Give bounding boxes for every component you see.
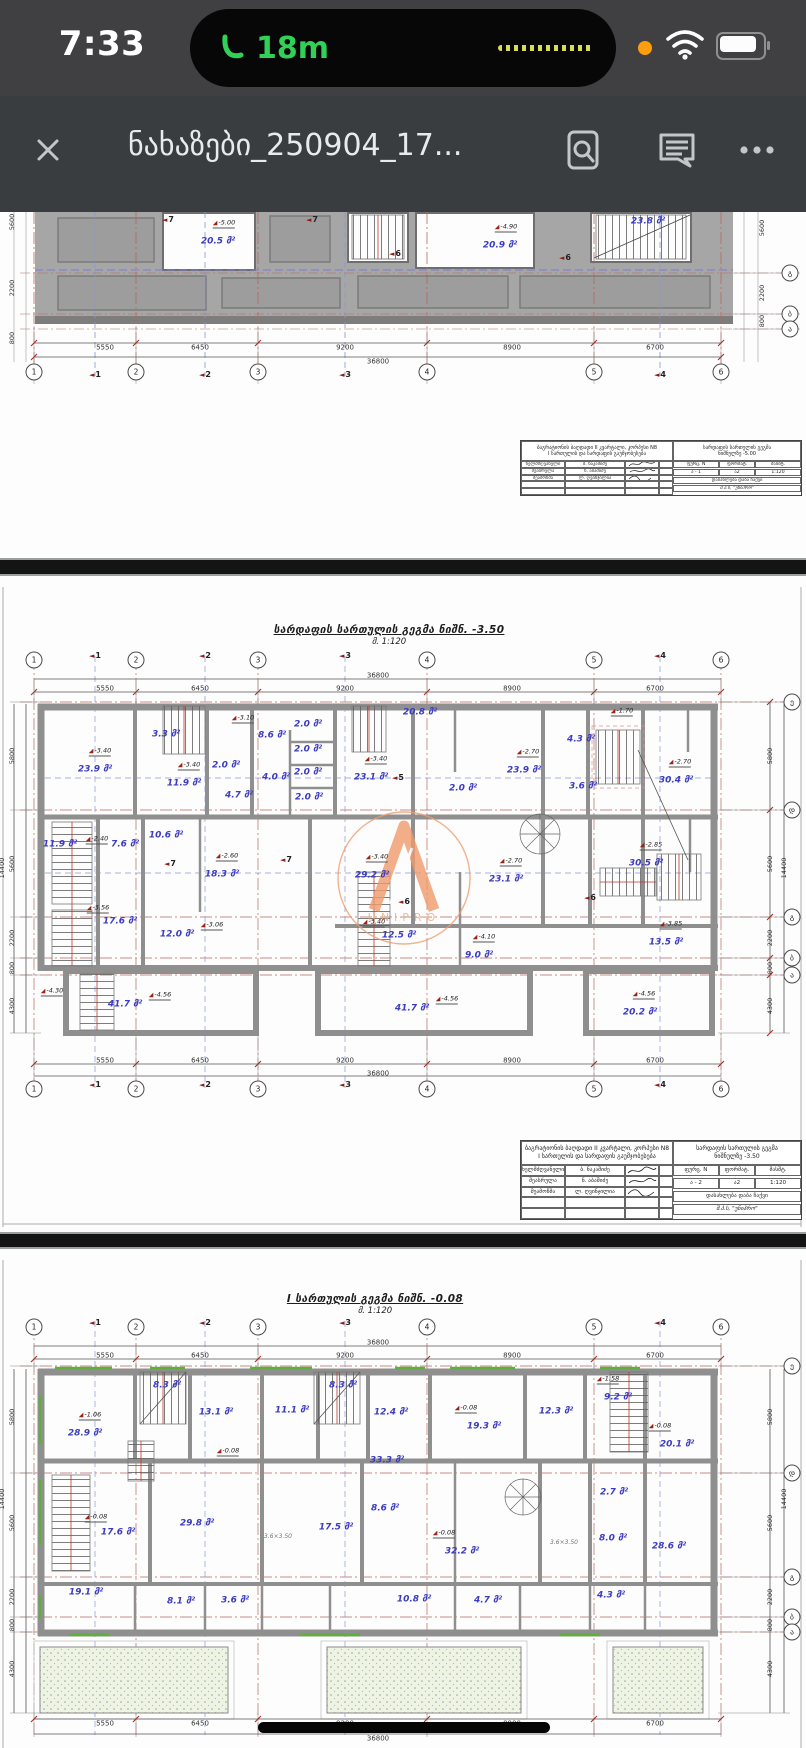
dynamic-island-call-pill[interactable]: 18m	[190, 9, 616, 87]
viewer-toolbar: ნახაზები_250904_17...	[0, 96, 806, 212]
dimension-label: 8900	[503, 686, 521, 693]
room-area-label: 19.1 მ²	[69, 1589, 103, 1598]
room-area-label: 23.9 მ²	[507, 767, 541, 776]
dimension-label: 36800	[367, 359, 389, 366]
room-area-label: 20.9 მ²	[483, 242, 517, 251]
dimension-label: 6450	[191, 1058, 209, 1065]
room-area-label: 3.3 მ²	[152, 731, 180, 740]
tb-sheet-value: ა - 2	[673, 1178, 719, 1189]
grid-bubble: 4	[419, 1319, 436, 1336]
room-area-label: 30.4 მ²	[659, 777, 693, 786]
section-flag-label: 1	[89, 1081, 101, 1089]
level-mark: -1.06	[79, 1412, 101, 1421]
dimension-label-vertical: 800	[9, 1619, 16, 1631]
grid-bubble: 6	[713, 364, 730, 381]
dimension-label: 36800	[367, 1736, 389, 1743]
battery-icon	[716, 32, 766, 60]
pdf-page-3: I სართულის გეგმა ნიშნ. -0.08 მ. 1:120	[0, 1245, 806, 1748]
room-area-label: 20.5 მ²	[201, 238, 235, 247]
dimension-label-vertical: 800	[767, 962, 774, 974]
tb-scale-value: 1:120	[755, 1178, 801, 1189]
tb-role: შეამოწმა	[521, 475, 565, 482]
room-area-label: 8.6 მ²	[258, 732, 286, 741]
dimension-label-vertical: 4300	[767, 998, 774, 1015]
dimension-label-vertical: 4300	[767, 1661, 774, 1678]
grid-bubble: ე	[784, 694, 801, 711]
dimension-label-vertical: 800	[9, 332, 16, 344]
room-area-label: 29.2 მ²	[355, 872, 389, 881]
room-area-label: 20.1 მ²	[660, 1441, 694, 1450]
drawing-heading: I სართულის გეგმა ნიშნ. -0.08 მ. 1:120	[287, 1293, 463, 1316]
grid-bubble: 1	[26, 1319, 43, 1336]
tb-company: შ.პ.ს, "უნიპრო"	[673, 1204, 801, 1215]
dimension-label-vertical: 14400	[0, 858, 5, 879]
level-mark: -4.56	[149, 992, 171, 1001]
grid-bubble: 3	[250, 652, 267, 669]
grid-bubble: 3	[250, 364, 267, 381]
tb-name: ლ. ღვინჯილია	[565, 1187, 625, 1198]
dimension-label-vertical: 5600	[9, 856, 16, 873]
room-area-label: 8.0 მ²	[599, 1535, 627, 1544]
close-button[interactable]	[22, 124, 74, 176]
tb-sheet-header: ფურც. N	[673, 461, 719, 468]
grid-bubble: 6	[713, 1319, 730, 1336]
dimension-label: 6700	[646, 1721, 664, 1728]
room-area-label: 2.0 მ²	[449, 785, 477, 794]
grid-bubble: 1	[26, 364, 43, 381]
dimension-label-vertical: 5800	[9, 1409, 16, 1426]
room-area-label: 11.1 მ²	[275, 1407, 309, 1416]
level-mark: -0.08	[433, 1530, 455, 1539]
room-area-label: 4.3 მ²	[597, 1592, 625, 1601]
dimension-label-vertical: 2200	[767, 1589, 774, 1606]
grid-bubble: 4	[419, 652, 436, 669]
room-area-label: 18.3 მ²	[205, 871, 239, 880]
level-mark: -4.56	[633, 991, 655, 1000]
level-mark: -4.56	[436, 996, 458, 1005]
recording-indicator-dot	[638, 41, 652, 55]
grid-bubble: გ	[784, 909, 801, 926]
tb-location: დასახლება დაბა ჩაქვი	[673, 1191, 801, 1202]
dimension-label-vertical: 5800	[767, 1409, 774, 1426]
grid-bubble: გ	[782, 265, 799, 282]
dimension-label-vertical: 800	[9, 962, 16, 974]
room-area-label: 7.6 მ²	[111, 841, 139, 850]
level-mark: -5.00	[213, 220, 235, 229]
room-area-label: 17.6 მ²	[103, 918, 137, 927]
tb-name: ბ. ნაკაშიძე	[565, 461, 625, 468]
pdf-page-2: სარდაფის სართულის გეგმა ნიშნ. -3.50 მ. 1…	[0, 572, 806, 1232]
room-area-label: 12.5 მ²	[382, 932, 416, 941]
room-area-label: 23.9 მ²	[78, 766, 112, 775]
dimension-label: 8900	[503, 345, 521, 352]
dimension-label: 6450	[191, 686, 209, 693]
phone-icon	[220, 33, 246, 63]
room-area-label: 10.8 მ²	[397, 1596, 431, 1605]
room-area-label: 8.1 მ²	[167, 1598, 195, 1607]
level-mark: -3.40	[363, 919, 385, 928]
dimension-label-vertical: 5600	[759, 220, 766, 237]
dimension-label-vertical: 5600	[9, 1515, 16, 1532]
tb-signature	[625, 475, 659, 482]
pdf-scroll-area[interactable]: -5.0020.5 მ²-4.9020.9 მ²23.8 მ²776655506…	[0, 212, 806, 1748]
dimension-label: 5550	[96, 1721, 114, 1728]
tb-scale-header: მასშტ.	[755, 461, 801, 468]
room-area-label: 23.1 მ²	[489, 876, 523, 885]
room-area-label: 8.6 მ²	[371, 1505, 399, 1514]
dimension-label: 6450	[191, 1353, 209, 1360]
tb-format-value: ა2	[719, 1178, 755, 1189]
title-block: ბაგრატიონის ბაღდადი II კვარტალი, კორპუსი…	[520, 1140, 802, 1220]
status-bar: 7:33 18m	[0, 0, 806, 96]
room-area-label: 3.6 მ²	[569, 783, 597, 792]
dimension-label-vertical: 4300	[9, 1661, 16, 1678]
drawing-heading: სარდაფის სართულის გეგმა ნიშნ. -3.50 მ. 1…	[274, 624, 505, 647]
section-flag-label: 3	[339, 1319, 351, 1327]
grid-bubble: 5	[586, 364, 603, 381]
dimension-label: 9200	[336, 686, 354, 693]
dimension-label: 36800	[367, 1340, 389, 1347]
room-area-label: 4.7 მ²	[225, 792, 253, 801]
level-mark: -2.40	[86, 836, 108, 845]
tb-signature	[625, 1165, 659, 1176]
tb-signature	[625, 461, 659, 468]
title-block-project: ბაგრატიონის ბაღდადი II კვარტალი, კორპუსი…	[521, 441, 673, 461]
room-area-label: 2.0 მ²	[212, 762, 240, 771]
grid-bubble: 3	[250, 1319, 267, 1336]
room-area-label: 41.7 მ²	[108, 1001, 142, 1010]
level-mark: -2.70	[500, 858, 522, 867]
grid-bubble: დ	[784, 802, 801, 819]
dimension-label: 6700	[646, 1058, 664, 1065]
dimension-label-vertical: 2200	[767, 930, 774, 947]
title-block-project: ბაგრატიონის ბაღდადი II კვარტალი, კორპუსი…	[521, 1141, 673, 1165]
tb-signature	[625, 468, 659, 475]
section-flag-label: 2	[199, 1081, 211, 1089]
section-flag-label: 2	[199, 371, 211, 379]
level-mark: -2.70	[517, 749, 539, 758]
dimension-label-vertical: 14400	[781, 858, 788, 879]
grid-bubble: 6	[713, 1081, 730, 1098]
tb-role: ხელმძღვანელი	[521, 461, 565, 468]
room-note-label: 3.6×3.50	[264, 1534, 292, 1540]
grid-bubble: 1	[26, 652, 43, 669]
level-mark: -4.10	[473, 934, 495, 943]
grid-bubble: ა	[782, 321, 799, 338]
tb-name: ბ. ნაკაშიძე	[565, 1165, 625, 1176]
dimension-label-vertical: 5600	[767, 1515, 774, 1532]
grid-bubble: ბ	[784, 950, 801, 967]
section-flag-label: 2	[199, 1319, 211, 1327]
room-area-label: 13.1 მ²	[199, 1409, 233, 1418]
room-area-label: 32.2 მ²	[445, 1548, 479, 1557]
dimension-label-vertical: 5800	[9, 748, 16, 765]
grid-bubble: დ	[784, 1465, 801, 1482]
level-mark: -3.40	[365, 756, 387, 765]
level-mark: -3.40	[89, 748, 111, 757]
grid-bubble: 5	[586, 652, 603, 669]
tb-role: შეასრულა	[521, 468, 565, 475]
dimension-label-vertical: 2200	[9, 280, 16, 297]
dimension-label: 5550	[96, 345, 114, 352]
dimension-label: 6450	[191, 345, 209, 352]
level-mark: -3.06	[201, 922, 223, 931]
home-indicator[interactable]	[258, 1722, 550, 1733]
tb-signature	[625, 1187, 659, 1198]
tb-name: ნ. აბაშიძე	[565, 1176, 625, 1187]
dimension-label: 6450	[191, 1721, 209, 1728]
grid-bubble: 2	[128, 1319, 145, 1336]
level-mark: -2.70	[669, 759, 691, 768]
more-options-button[interactable]	[731, 124, 783, 176]
room-area-label: 4.7 მ²	[474, 1597, 502, 1606]
grid-bubble: 6	[713, 652, 730, 669]
grid-bubble: 4	[419, 364, 436, 381]
section-flag-label: 7	[306, 216, 318, 224]
dimension-label: 8900	[503, 1058, 521, 1065]
tb-format-header: ფორმატ.	[719, 461, 755, 468]
room-area-label: 3.6 მ²	[221, 1597, 249, 1606]
room-area-label: 13.5 მ²	[649, 939, 683, 948]
tb-name: ნ. აბაშიძე	[565, 468, 625, 475]
tb-company: შ.პ.ს, "უნიპრო"	[673, 485, 801, 492]
room-area-label: 12.3 მ²	[539, 1408, 573, 1417]
room-area-label: 10.6 მ²	[149, 832, 183, 841]
section-flag-label: 1	[89, 371, 101, 379]
grid-bubble: 1	[26, 1081, 43, 1098]
section-flag-label: 1	[89, 652, 101, 660]
tb-format-header: ფორმატ.	[719, 1165, 755, 1176]
section-flag-label: 4	[654, 1081, 666, 1089]
section-flag-label: 4	[654, 1319, 666, 1327]
title-block-drawing: სარდაფის სართულის გეგმანიშნულზე -3.50	[673, 1141, 801, 1165]
dimension-label: 6700	[646, 686, 664, 693]
dimension-label: 5550	[96, 1058, 114, 1065]
room-area-label: 2.0 მ²	[294, 721, 322, 730]
dimension-label-vertical: 14400	[781, 1489, 788, 1510]
dimension-label: 5550	[96, 686, 114, 693]
room-note-label: 3.6×3.50	[550, 1540, 578, 1546]
room-area-label: 8.3 მ²	[329, 1382, 357, 1391]
tb-sheet-value: ა - 1	[673, 469, 719, 476]
section-flag-label: 4	[654, 652, 666, 660]
dimension-label: 36800	[367, 1071, 389, 1078]
page-separator	[0, 1232, 806, 1249]
grid-bubble: ა	[784, 967, 801, 984]
tb-name: ლ. ღვინჯილია	[565, 475, 625, 482]
level-mark: -3.40	[366, 854, 388, 863]
tb-format-value: ა2	[719, 469, 755, 476]
room-area-label: 2.0 მ²	[294, 746, 322, 755]
section-flag-label: 7	[280, 856, 292, 864]
level-mark: -1.70	[611, 708, 633, 717]
tb-scale-value: 1:120	[755, 469, 801, 476]
pdf-page-1: -5.0020.5 მ²-4.9020.9 მ²23.8 მ²776655506…	[0, 212, 806, 558]
grid-bubble: ა	[784, 1624, 801, 1641]
grid-bubble: 4	[419, 1081, 436, 1098]
level-mark: -0.08	[217, 1448, 239, 1457]
section-flag-label: 2	[199, 652, 211, 660]
search-in-document-button[interactable]	[557, 124, 609, 176]
call-duration: 18m	[256, 31, 329, 66]
room-area-label: 4.3 მ²	[567, 736, 595, 745]
grid-bubble: 5	[586, 1319, 603, 1336]
dimension-label-vertical: 800	[759, 315, 766, 327]
grid-bubble: ე	[784, 1358, 801, 1375]
room-area-label: 20.8 მ²	[403, 709, 437, 718]
tb-role: შეამოწმა	[521, 1187, 565, 1198]
dimension-label: 6700	[646, 1353, 664, 1360]
grid-bubble: 2	[128, 364, 145, 381]
room-area-label: 17.6 მ²	[101, 1529, 135, 1538]
room-area-label: 28.6 მ²	[652, 1543, 686, 1552]
room-area-label: 29.8 მ²	[180, 1520, 214, 1529]
tb-role: ხელმძღვანელი	[521, 1165, 565, 1176]
grid-bubble: 5	[586, 1081, 603, 1098]
dimension-label: 6700	[646, 345, 664, 352]
dimension-label-vertical: 14400	[0, 1489, 5, 1510]
section-flag-label: 3	[339, 1081, 351, 1089]
room-area-label: 12.0 მ²	[160, 931, 194, 940]
room-area-label: 11.9 მ²	[43, 841, 77, 850]
audio-level-dots	[498, 45, 594, 51]
comments-button[interactable]	[651, 124, 703, 176]
title-block: ბაგრატიონის ბაღდადი II კვარტალი, კორპუსი…	[520, 440, 802, 496]
level-mark: -3.56	[87, 905, 109, 914]
room-area-label: 9.2 მ²	[604, 1394, 632, 1403]
room-area-label: 33.3 მ²	[370, 1457, 404, 1466]
room-area-label: 19.3 მ²	[467, 1423, 501, 1432]
room-area-label: 30.5 მ²	[629, 860, 663, 869]
tb-role: შეასრულა	[521, 1176, 565, 1187]
dimension-label-vertical: 2200	[759, 285, 766, 302]
room-area-label: 11.9 მ²	[167, 780, 201, 789]
page-separator	[0, 558, 806, 576]
dimension-label-vertical: 5800	[767, 748, 774, 765]
dimension-label: 9200	[336, 345, 354, 352]
tb-signature	[625, 1176, 659, 1187]
room-area-label: 4.0 მ²	[262, 774, 290, 783]
section-flag-label: 6	[389, 250, 401, 258]
room-area-label: 20.2 მ²	[623, 1009, 657, 1018]
section-flag-label: 4	[654, 371, 666, 379]
tb-scale-header: მასშტ.	[755, 1165, 801, 1176]
section-flag-label: 7	[164, 860, 176, 868]
room-area-label: 12.4 მ²	[374, 1409, 408, 1418]
clock: 7:33	[52, 24, 152, 64]
room-area-label: 2.7 მ²	[600, 1489, 628, 1498]
room-area-label: 23.8 მ²	[631, 218, 665, 227]
room-area-label: 23.1 მ²	[354, 774, 388, 783]
level-mark: -2.60	[216, 853, 238, 862]
room-area-label: 28.9 მ²	[68, 1430, 102, 1439]
level-mark: -3.10	[232, 715, 254, 724]
room-area-label: 17.5 მ²	[319, 1524, 353, 1533]
level-mark: -3.40	[178, 762, 200, 771]
dimension-label-vertical: 5600	[9, 214, 16, 231]
tb-sheet-header: ფურც. N	[673, 1165, 719, 1176]
room-area-label: 2.0 მ²	[295, 794, 323, 803]
level-mark: -4.90	[495, 224, 517, 233]
document-title: ნახაზები_250904_17...	[128, 128, 558, 163]
room-area-label: 41.7 მ²	[395, 1005, 429, 1014]
room-area-label: 9.0 მ²	[465, 952, 493, 961]
level-mark: -2.85	[640, 842, 662, 851]
grid-bubble: გ	[784, 1569, 801, 1586]
level-mark: -1.58	[597, 1376, 619, 1385]
level-mark: -4.30	[41, 988, 63, 997]
grid-bubble: 2	[128, 652, 145, 669]
level-mark: -0.08	[649, 1423, 671, 1432]
wifi-icon	[664, 28, 706, 64]
level-mark: -3.85	[660, 921, 682, 930]
level-mark: -0.08	[455, 1405, 477, 1414]
dimension-label-vertical: 5600	[767, 856, 774, 873]
section-flag-label: 3	[339, 371, 351, 379]
dimension-label: 9200	[336, 1353, 354, 1360]
dimension-label-vertical: 800	[767, 1619, 774, 1631]
section-flag-label: 3	[339, 652, 351, 660]
dimension-label: 5550	[96, 1353, 114, 1360]
section-flag-label: 5	[392, 774, 404, 782]
section-flag-label: 7	[162, 216, 174, 224]
section-flag-label: 6	[584, 894, 596, 902]
dimension-label-vertical: 4300	[9, 998, 16, 1015]
section-flag-label: 1	[89, 1319, 101, 1327]
tb-location: დასახლება დაბა ჩაქვი	[673, 477, 801, 484]
grid-bubble: 2	[128, 1081, 145, 1098]
grid-bubble: 3	[250, 1081, 267, 1098]
title-block-drawing: სარდაფის სართულის გეგმანიშნულზე -5.00	[673, 441, 801, 461]
dimension-label: 8900	[503, 1353, 521, 1360]
dimension-label: 9200	[336, 1058, 354, 1065]
level-mark: -0.08	[85, 1514, 107, 1523]
dimension-label-vertical: 2200	[9, 930, 16, 947]
section-flag-label: 6	[398, 898, 410, 906]
room-area-label: 2.0 მ²	[294, 769, 322, 778]
section-flag-label: 6	[559, 254, 571, 262]
room-area-label: 8.3 მ²	[153, 1382, 181, 1391]
dimension-label-vertical: 2200	[9, 1589, 16, 1606]
dimension-label: 36800	[367, 673, 389, 680]
